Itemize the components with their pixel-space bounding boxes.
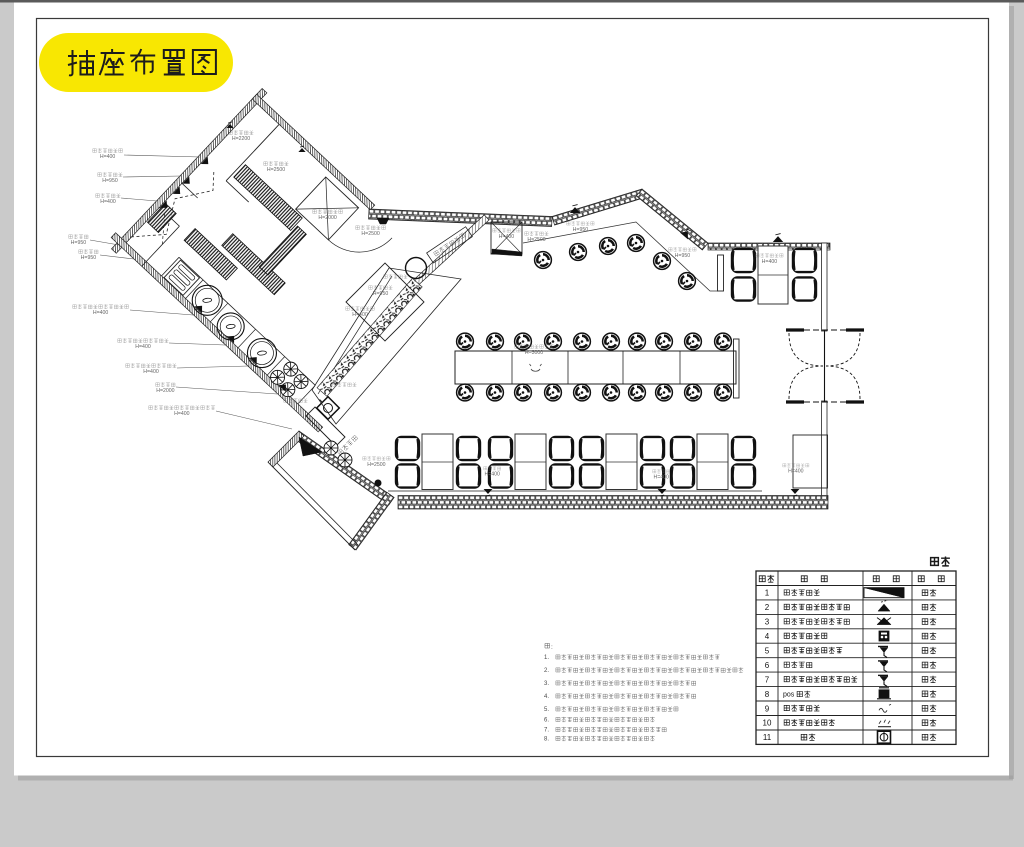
svg-text:H=400: H=400 [93, 310, 109, 316]
svg-text:8.: 8. [544, 737, 549, 743]
svg-text:8: 8 [765, 690, 770, 699]
svg-text:6.: 6. [544, 718, 549, 724]
svg-text:H=400: H=400 [100, 199, 116, 205]
svg-text:5.: 5. [544, 707, 549, 713]
svg-text:H=2500: H=2500 [267, 167, 285, 173]
svg-text:1.: 1. [544, 655, 549, 661]
svg-text:7.: 7. [544, 728, 549, 734]
svg-text:H=400: H=400 [100, 154, 116, 160]
svg-text:H=2200: H=2200 [232, 136, 250, 142]
svg-text:2.: 2. [544, 668, 549, 674]
svg-text:H=400: H=400 [499, 234, 515, 240]
svg-text:10: 10 [763, 719, 772, 728]
svg-text:H=2000: H=2000 [156, 388, 174, 394]
svg-text:1: 1 [765, 589, 770, 598]
svg-text::: : [551, 644, 553, 651]
svg-text:H=400: H=400 [174, 411, 190, 417]
svg-text:H=400: H=400 [484, 472, 500, 478]
svg-text:3: 3 [765, 618, 770, 627]
svg-text:3.: 3. [544, 681, 549, 687]
svg-text:H=400: H=400 [788, 469, 804, 475]
svg-text:H=950: H=950 [81, 255, 97, 261]
svg-text:H=400: H=400 [653, 475, 669, 481]
svg-text:H=400: H=400 [762, 259, 778, 265]
svg-text:H=2500: H=2500 [361, 231, 379, 237]
svg-text:H=950: H=950 [573, 227, 589, 233]
svg-text:H=400: H=400 [135, 344, 151, 350]
svg-text:H=400: H=400 [143, 369, 159, 375]
svg-text:H=950: H=950 [102, 178, 118, 184]
svg-text:H=3000: H=3000 [525, 350, 543, 356]
svg-text:2: 2 [765, 603, 770, 612]
svg-text:4: 4 [765, 632, 770, 641]
svg-text:4.: 4. [544, 694, 549, 700]
svg-text:11: 11 [763, 733, 772, 742]
svg-text:H=950: H=950 [675, 253, 691, 259]
svg-text:H=950: H=950 [373, 291, 389, 297]
svg-text:pos: pos [783, 691, 795, 698]
svg-text:7: 7 [765, 675, 770, 684]
svg-text:H=2500: H=2500 [367, 462, 385, 468]
svg-text:9: 9 [765, 704, 770, 713]
svg-text:H=400: H=400 [352, 312, 368, 318]
svg-text:6: 6 [765, 661, 770, 670]
svg-text:5: 5 [765, 647, 770, 656]
svg-text:H=2000: H=2000 [318, 215, 336, 221]
svg-text:H=950: H=950 [71, 240, 87, 246]
svg-text:H=2500: H=2500 [527, 237, 545, 243]
